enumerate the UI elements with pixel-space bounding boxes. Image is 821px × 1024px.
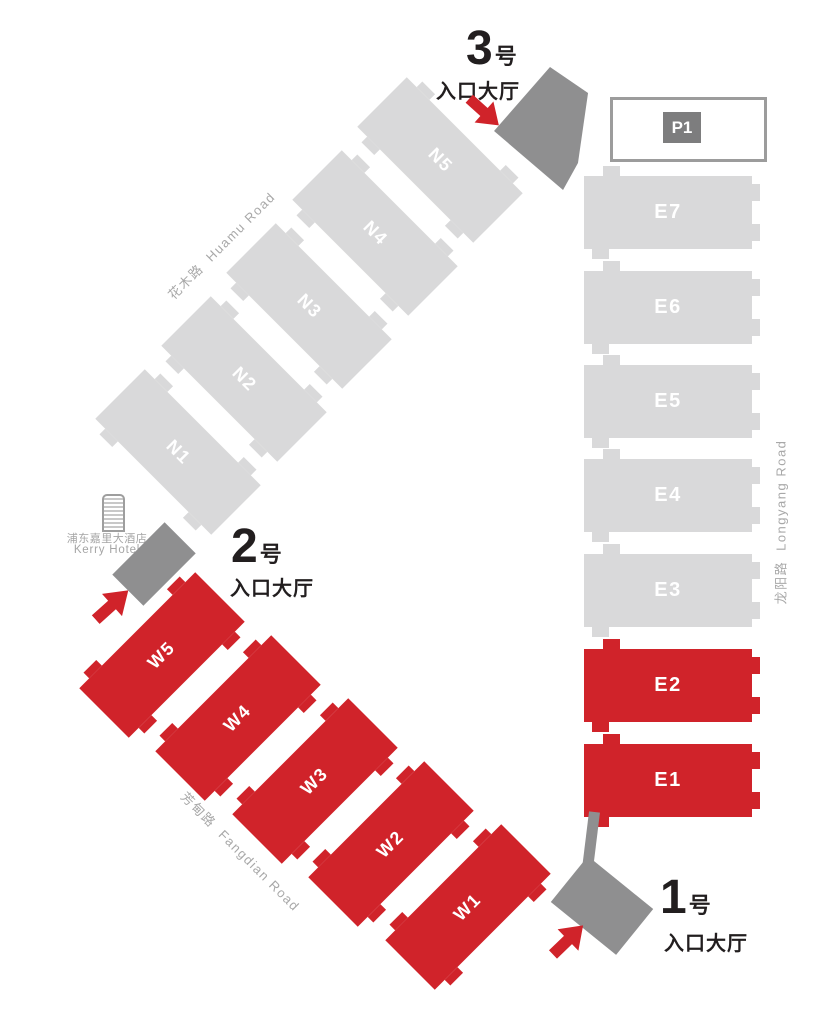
hall-tab [752, 562, 760, 579]
hall-e5: E5 [584, 365, 752, 438]
hall-tab [603, 355, 620, 365]
hotel-icon [102, 494, 125, 532]
hall-tab [603, 261, 620, 271]
entrance-1-label: 入口大厅 [664, 927, 748, 956]
hall-tab [592, 627, 609, 637]
road-longyang-cn: 龙阳路 [774, 561, 789, 605]
hall-e6: E6 [584, 271, 752, 344]
hall-e3: E3 [584, 554, 752, 627]
hall-e7: E7 [584, 176, 752, 249]
hall-tab [603, 639, 620, 649]
hall-tab [752, 413, 760, 430]
hall-tab [752, 602, 760, 619]
hall-tab [603, 544, 620, 554]
hall-tab [603, 734, 620, 744]
hall-tab [592, 344, 609, 354]
hall-tab [752, 279, 760, 296]
entrance-2-label: 入口大厅 [230, 572, 314, 601]
road-longyang-en: Longyang Road [774, 440, 789, 551]
hall-tab [752, 657, 760, 674]
entrance-1-connector [583, 811, 600, 864]
parking-p1-box: P1 [610, 97, 767, 162]
hall-tab [752, 373, 760, 390]
hall-tab [592, 438, 609, 448]
hall-tab [752, 697, 760, 714]
hall-tab [752, 752, 760, 769]
road-label-longyang: 龙阳路Longyang Road [771, 440, 790, 605]
hall-tab [752, 224, 760, 241]
hall-tab [592, 532, 609, 542]
hall-e1: E1 [584, 744, 752, 817]
entrance-1-number: 1号 [660, 879, 711, 917]
hall-tab [752, 792, 760, 809]
hall-tab [592, 722, 609, 732]
venue-map: 花木路Huamu Road 龙阳路Longyang Road 芳甸路Fangdi… [0, 0, 821, 1024]
hall-tab [592, 249, 609, 259]
entrance-3-number: 3号 [466, 30, 517, 68]
hall-e4: E4 [584, 459, 752, 532]
hall-e2: E2 [584, 649, 752, 722]
entrance-2-number: 2号 [231, 528, 282, 566]
hall-tab [752, 319, 760, 336]
hall-tab [752, 467, 760, 484]
road-huamu-cn: 花木路 [165, 261, 206, 302]
hall-tab [752, 184, 760, 201]
parking-p1-badge: P1 [663, 112, 701, 143]
hall-tab [603, 449, 620, 459]
hall-tab [603, 166, 620, 176]
hall-tab [752, 507, 760, 524]
